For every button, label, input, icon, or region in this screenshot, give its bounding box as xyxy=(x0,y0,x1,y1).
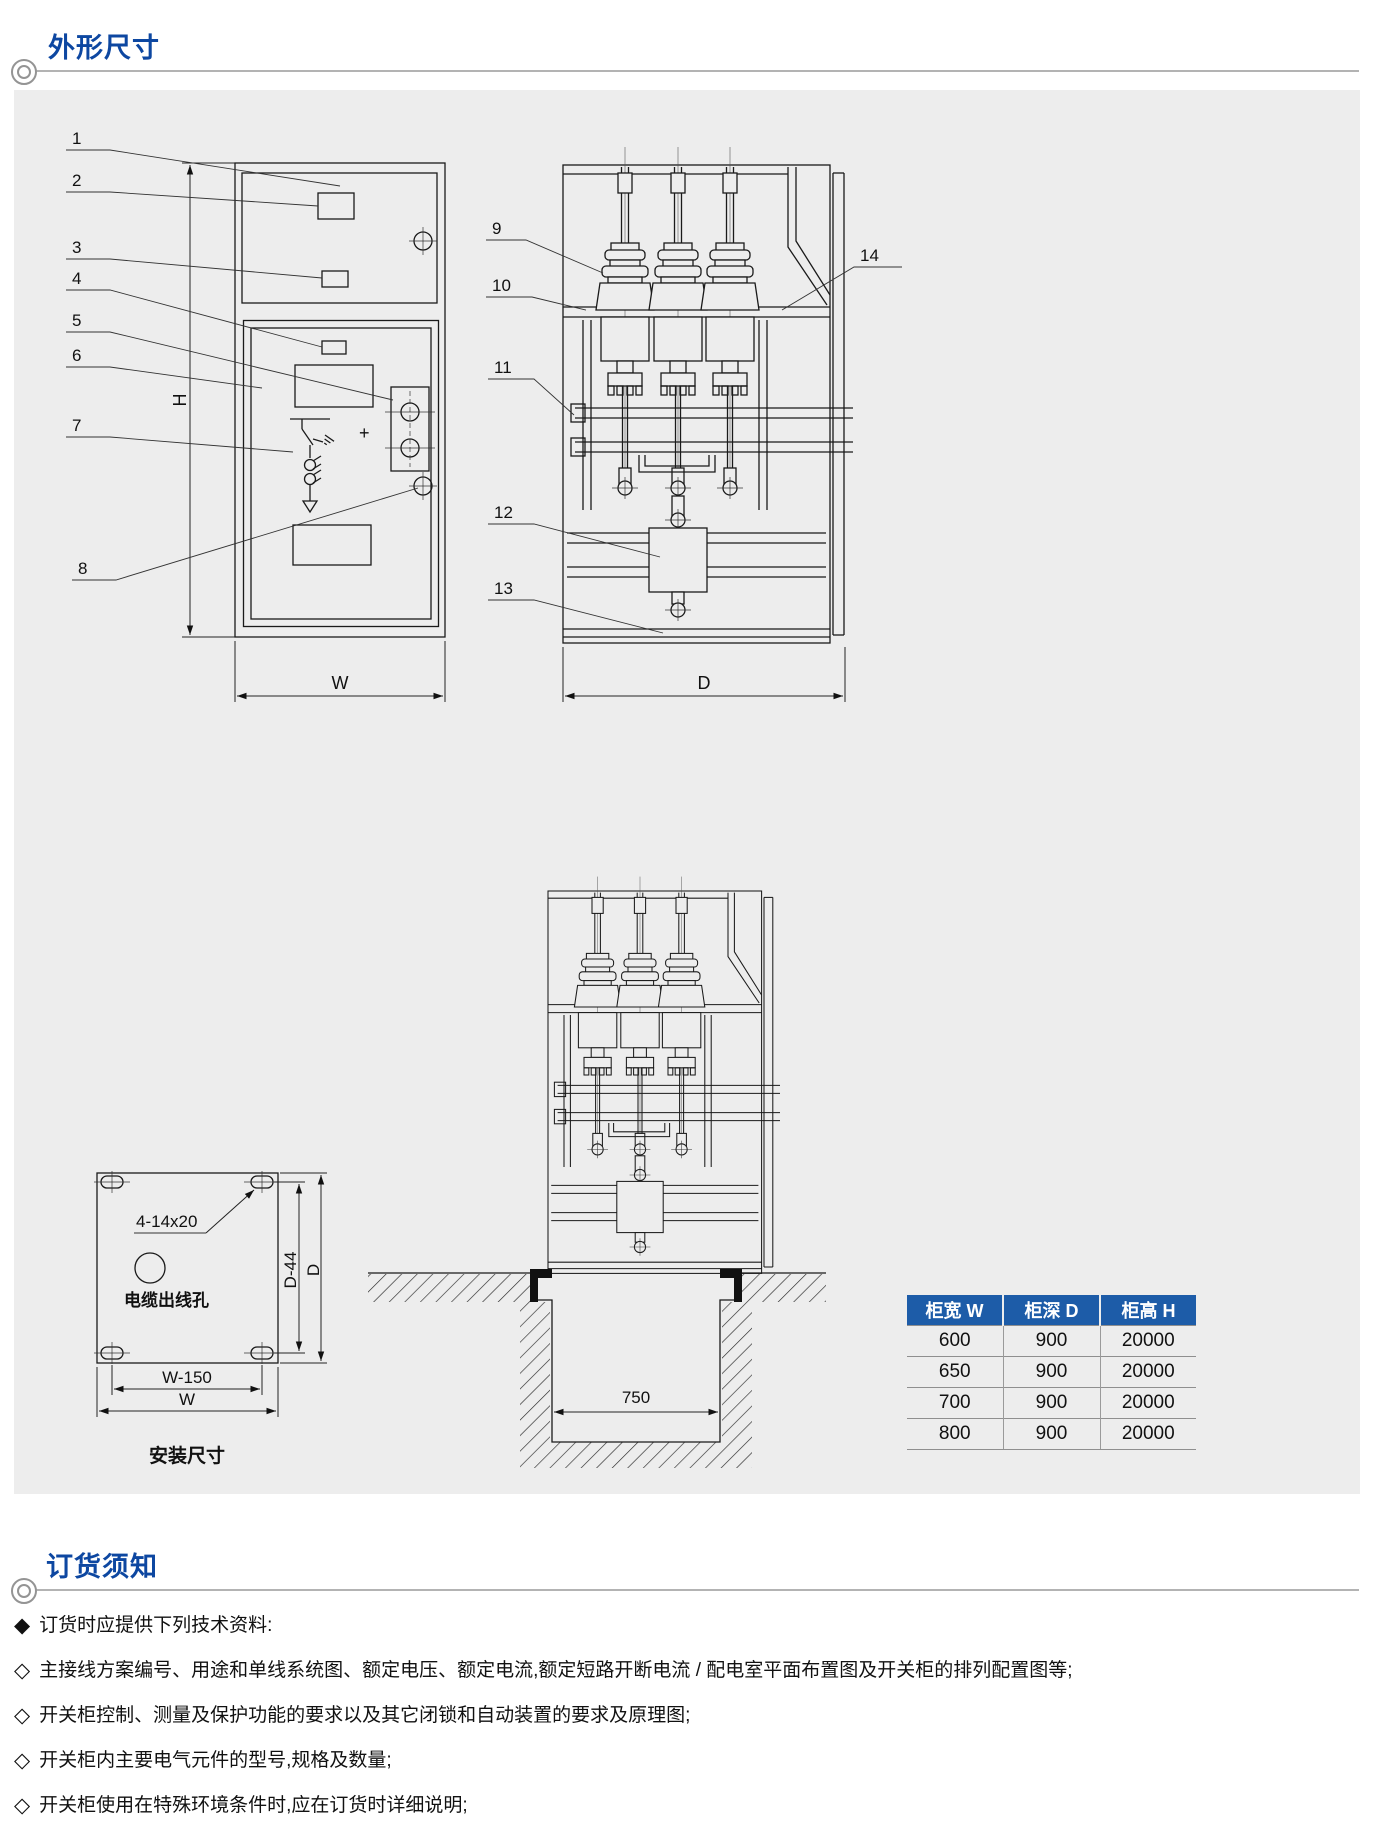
indicator-window xyxy=(322,271,348,287)
table-header-height: 柜高 H xyxy=(1100,1295,1196,1326)
cabinet-on-foundation xyxy=(548,877,780,1274)
section-ring-icon xyxy=(11,59,37,85)
label-plate-small xyxy=(322,341,346,354)
note-text: 开关柜控制、测量及保护功能的要求以及其它闭锁和自动装置的要求及原理图; xyxy=(39,1702,690,1730)
callout-label-10: 10 xyxy=(492,276,511,295)
table-cell: 900 xyxy=(1003,1419,1100,1450)
callout-label-13: 13 xyxy=(494,579,513,598)
table-cell: 800 xyxy=(907,1419,1003,1450)
door-bolt xyxy=(409,472,437,500)
dim-height: H xyxy=(170,163,235,637)
door-handle-lock xyxy=(409,227,437,255)
cabinet-door xyxy=(244,321,439,627)
table-cell: 650 xyxy=(907,1357,1003,1388)
table-row: 650 900 20000 xyxy=(907,1357,1196,1388)
note-text: 订货时应提供下列技术资料: xyxy=(39,1612,272,1640)
section-ring-icon xyxy=(11,1578,37,1604)
mounting-slot-bl xyxy=(94,1342,130,1364)
dim-label-d44: D-44 xyxy=(281,1252,300,1289)
table-header-depth: 柜深 D xyxy=(1003,1295,1100,1326)
table-cell: 20000 xyxy=(1100,1419,1196,1450)
diamond-filled-icon: ◆ xyxy=(14,1612,30,1640)
table-row: 600 900 20000 xyxy=(907,1326,1196,1357)
callout-label-3: 3 xyxy=(72,238,81,257)
table-cell: 900 xyxy=(1003,1388,1100,1419)
dim-label-mount-w: W xyxy=(179,1390,195,1409)
mounting-plan-caption: 安装尺寸 xyxy=(149,1444,225,1467)
section-divider-line xyxy=(20,70,1359,72)
front-view-drawing: + xyxy=(235,163,445,637)
trench-bottom-hatch xyxy=(520,1442,752,1468)
callout-label-5: 5 xyxy=(72,311,81,330)
cable-hole-label: 电缆出线孔 xyxy=(124,1290,209,1310)
plus-sign: + xyxy=(359,423,370,443)
note-text: 开关柜使用在特殊环境条件时,应在订货时详细说明; xyxy=(39,1792,468,1820)
note-item: ◇ 开关柜控制、测量及保护功能的要求以及其它闭锁和自动装置的要求及原理图; xyxy=(14,1702,1364,1730)
side-view-drawing xyxy=(563,147,853,643)
diamond-outline-icon: ◇ xyxy=(14,1792,30,1820)
note-item: ◇ 开关柜内主要电气元件的型号,规格及数量; xyxy=(14,1747,1364,1775)
dim-label-mount-d: D xyxy=(304,1264,323,1276)
dim-depth: D xyxy=(563,647,845,702)
ordering-notes: ◆ 订货时应提供下列技术资料: ◇ 主接线方案编号、用途和单线系统图、额定电压、… xyxy=(14,1612,1364,1837)
table-row: 700 900 20000 xyxy=(907,1388,1196,1419)
callout-label-11: 11 xyxy=(494,358,512,377)
cable-trench xyxy=(535,1278,740,1442)
lower-label-plate xyxy=(293,525,371,565)
ground-hatch-left xyxy=(368,1274,535,1302)
trench-wall-hatch-left xyxy=(520,1302,550,1442)
mounting-slot-tl xyxy=(94,1171,130,1193)
dim-label-w150: W-150 xyxy=(162,1368,212,1387)
callout-label-6: 6 xyxy=(72,346,81,365)
dim-label-w: W xyxy=(332,673,349,693)
callout-label-12: 12 xyxy=(494,503,513,522)
callout-label-9: 9 xyxy=(492,219,501,238)
table-cell: 20000 xyxy=(1100,1388,1196,1419)
note-item: ◇ 开关柜使用在特殊环境条件时,应在订货时详细说明; xyxy=(14,1792,1364,1820)
note-text: 开关柜内主要电气元件的型号,规格及数量; xyxy=(39,1747,392,1775)
mounting-plan-drawing: 4-14x20 电缆出线孔 W-150 W D-44 D 安装尺寸 xyxy=(94,1171,327,1467)
note-item: ◆ 订货时应提供下列技术资料: xyxy=(14,1612,1364,1640)
ground-hatch-right xyxy=(742,1274,826,1302)
ground-symbol xyxy=(321,435,334,447)
mimic-diagram xyxy=(290,419,334,512)
callout-label-8: 8 xyxy=(78,559,87,578)
diamond-outline-icon: ◇ xyxy=(14,1702,30,1730)
table-cell: 900 xyxy=(1003,1357,1100,1388)
callout-label-2: 2 xyxy=(72,171,81,190)
dimension-table: 柜宽 W 柜深 D 柜高 H 600 900 20000 650 900 200… xyxy=(907,1295,1196,1450)
foundation-section-drawing: 750 xyxy=(368,877,826,1468)
dim-label-d: D xyxy=(698,673,711,693)
dim-label-h: H xyxy=(170,394,190,407)
callout-label-14: 14 xyxy=(860,246,879,265)
table-header-width: 柜宽 W xyxy=(907,1295,1003,1326)
trench-wall-hatch-right xyxy=(722,1302,752,1442)
note-text: 主接线方案编号、用途和单线系统图、额定电压、额定电流,额定短路开断电流 / 配电… xyxy=(39,1657,1072,1685)
page-title-dimensions: 外形尺寸 xyxy=(48,26,160,65)
technical-drawing: + xyxy=(14,90,1360,1494)
dim-label-750: 750 xyxy=(622,1388,650,1407)
callout-label-1: 1 xyxy=(72,129,81,148)
cable-outlet-hole xyxy=(135,1253,165,1283)
table-cell: 600 xyxy=(907,1326,1003,1357)
table-cell: 20000 xyxy=(1100,1326,1196,1357)
table-cell: 20000 xyxy=(1100,1357,1196,1388)
table-row: 800 900 20000 xyxy=(907,1419,1196,1450)
page-title-ordering: 订货须知 xyxy=(46,1545,158,1584)
note-item: ◇ 主接线方案编号、用途和单线系统图、额定电压、额定电流,额定短路开断电流 / … xyxy=(14,1657,1364,1685)
diamond-outline-icon: ◇ xyxy=(14,1747,30,1775)
instrument-window xyxy=(318,193,354,219)
section-divider-line xyxy=(20,1589,1359,1591)
callout-label-4: 4 xyxy=(72,269,81,288)
mount-holes-label: 4-14x20 xyxy=(136,1212,197,1231)
table-cell: 900 xyxy=(1003,1326,1100,1357)
dim-width: W xyxy=(235,641,445,702)
diamond-outline-icon: ◇ xyxy=(14,1657,30,1685)
callout-label-7: 7 xyxy=(72,416,81,435)
drawings-panel: + xyxy=(14,90,1360,1494)
table-cell: 700 xyxy=(907,1388,1003,1419)
